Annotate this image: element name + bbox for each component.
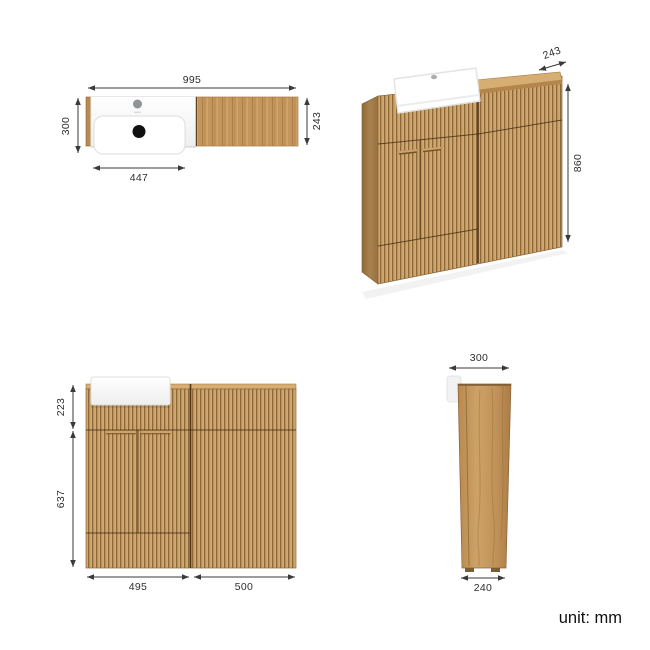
product-dimension-diagram: 995 300 447 243 — [0, 0, 650, 650]
front-sink-shadow — [91, 405, 170, 408]
front-dim-vanity-width: 495 — [87, 577, 189, 593]
front-view: 223 637 495 500 — [55, 377, 296, 593]
diagram-canvas: 995 300 447 243 — [0, 0, 650, 650]
side-dim-depth-base: 240 — [461, 578, 505, 594]
plan-dim-width: 995 — [88, 74, 296, 88]
front-sink — [91, 377, 170, 405]
persp-dim-depth: 243 — [539, 44, 566, 70]
plan-dim-width-label: 995 — [183, 74, 201, 86]
side-dim-depth-top: 300 — [449, 352, 509, 368]
front-dim-lower: 637 — [55, 431, 73, 567]
faucet-hole-icon — [133, 100, 142, 109]
plan-dim-depth-cabinet-label: 243 — [311, 112, 323, 130]
persp-dim-height-label: 860 — [572, 154, 584, 172]
persp-side-panel — [362, 96, 378, 284]
plan-dim-depth-total: 300 — [60, 98, 78, 153]
basin-logo-mark — [134, 112, 141, 114]
front-dim-vanity-width-label: 495 — [129, 581, 147, 593]
plan-dim-basin-width: 447 — [93, 168, 185, 184]
front-dim-wc-width: 500 — [194, 577, 295, 593]
plan-dim-basin-width-label: 447 — [130, 172, 148, 184]
perspective-view: 243 860 — [362, 44, 584, 299]
front-dim-wc-width-label: 500 — [235, 581, 253, 593]
side-dim-depth-base-label: 240 — [474, 582, 492, 594]
unit-note: unit: mm — [559, 609, 622, 627]
plan-countertop — [196, 97, 298, 146]
plan-dim-depth-cabinet: 243 — [307, 98, 323, 145]
side-view: 300 240 — [447, 352, 511, 594]
front-dim-lower-label: 637 — [55, 490, 67, 508]
side-dim-depth-top-label: 300 — [470, 352, 488, 364]
side-panel-feet — [465, 568, 500, 572]
plan-view: 995 300 447 243 — [60, 74, 323, 184]
drain-hole-icon — [133, 125, 146, 138]
plan-dim-depth-total-label: 300 — [60, 117, 72, 135]
front-dim-upper-label: 223 — [55, 398, 67, 416]
persp-dim-height: 860 — [568, 84, 584, 242]
front-dim-upper: 223 — [55, 385, 73, 429]
persp-faucet-hole-icon — [431, 75, 437, 79]
persp-dim-depth-label: 243 — [541, 44, 562, 62]
